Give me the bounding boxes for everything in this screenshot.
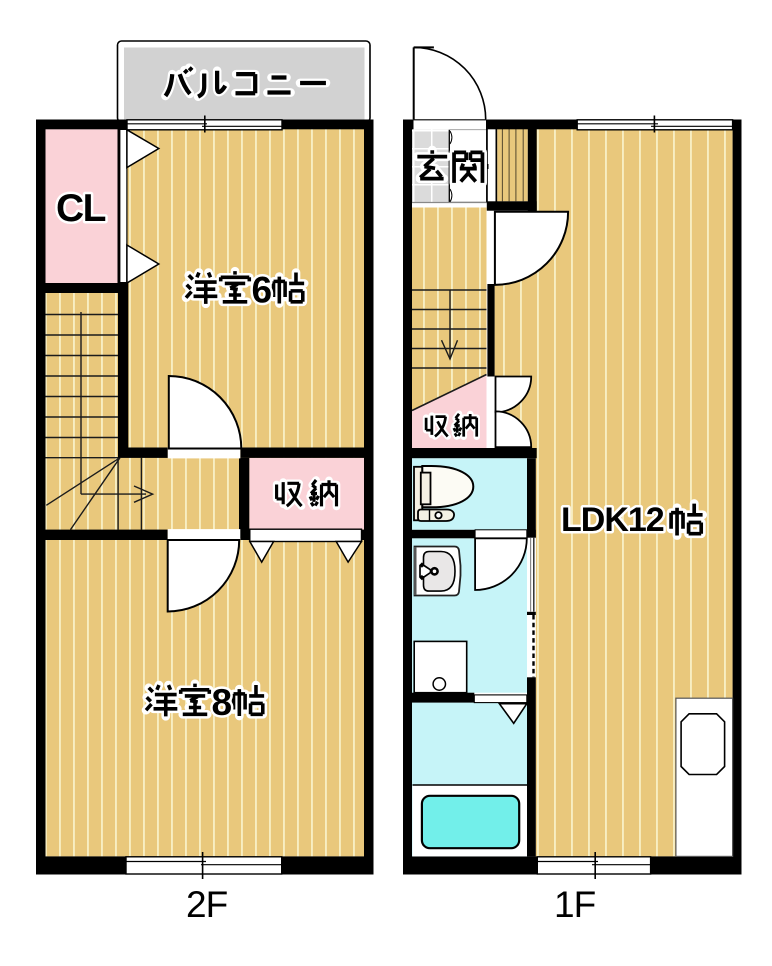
svg-text:1F: 1F [554, 884, 596, 925]
svg-text:2F: 2F [186, 884, 228, 925]
svg-text:LDK12: LDK12 [561, 501, 664, 539]
svg-text:8: 8 [212, 682, 233, 723]
svg-text:CL: CL [56, 187, 106, 230]
svg-text:6: 6 [252, 270, 273, 311]
